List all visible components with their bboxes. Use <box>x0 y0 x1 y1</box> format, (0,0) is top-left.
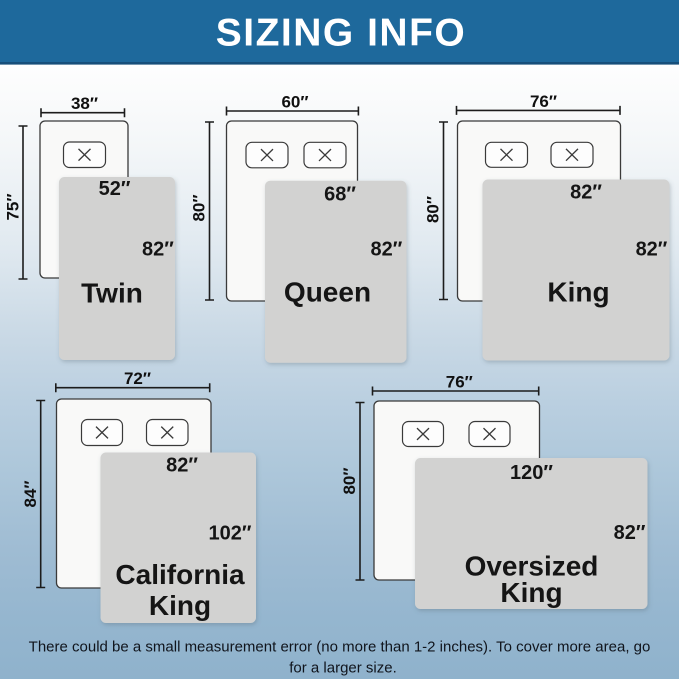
svg-text:King: King <box>500 577 562 608</box>
svg-text:102″: 102″ <box>209 523 252 545</box>
svg-text:King: King <box>547 277 609 308</box>
svg-text:King: King <box>149 590 211 621</box>
svg-text:76″: 76″ <box>446 373 473 392</box>
svg-text:60″: 60″ <box>281 93 308 112</box>
svg-text:There could be a small measure: There could be a small measurement error… <box>29 639 651 656</box>
svg-text:SIZING INFO: SIZING INFO <box>216 12 467 55</box>
svg-text:82″: 82″ <box>166 455 198 477</box>
svg-text:82″: 82″ <box>370 239 402 261</box>
svg-text:84″: 84″ <box>21 480 40 507</box>
svg-text:120″: 120″ <box>510 462 553 484</box>
svg-text:Twin: Twin <box>81 278 143 309</box>
svg-text:for a larger size.: for a larger size. <box>289 660 397 677</box>
svg-text:68″: 68″ <box>324 184 356 206</box>
svg-text:52″: 52″ <box>99 178 131 200</box>
svg-text:California: California <box>115 559 245 590</box>
svg-text:82″: 82″ <box>636 239 668 261</box>
svg-text:76″: 76″ <box>530 92 557 111</box>
svg-text:38″: 38″ <box>71 94 98 113</box>
svg-text:80″: 80″ <box>424 196 443 223</box>
svg-text:80″: 80″ <box>340 467 359 494</box>
svg-text:80″: 80″ <box>190 194 209 221</box>
svg-text:72″: 72″ <box>124 369 151 388</box>
svg-text:75″: 75″ <box>3 193 22 220</box>
svg-text:82″: 82″ <box>570 182 602 204</box>
svg-text:82″: 82″ <box>142 239 174 261</box>
svg-text:Queen: Queen <box>284 277 371 308</box>
svg-text:82″: 82″ <box>614 522 646 544</box>
